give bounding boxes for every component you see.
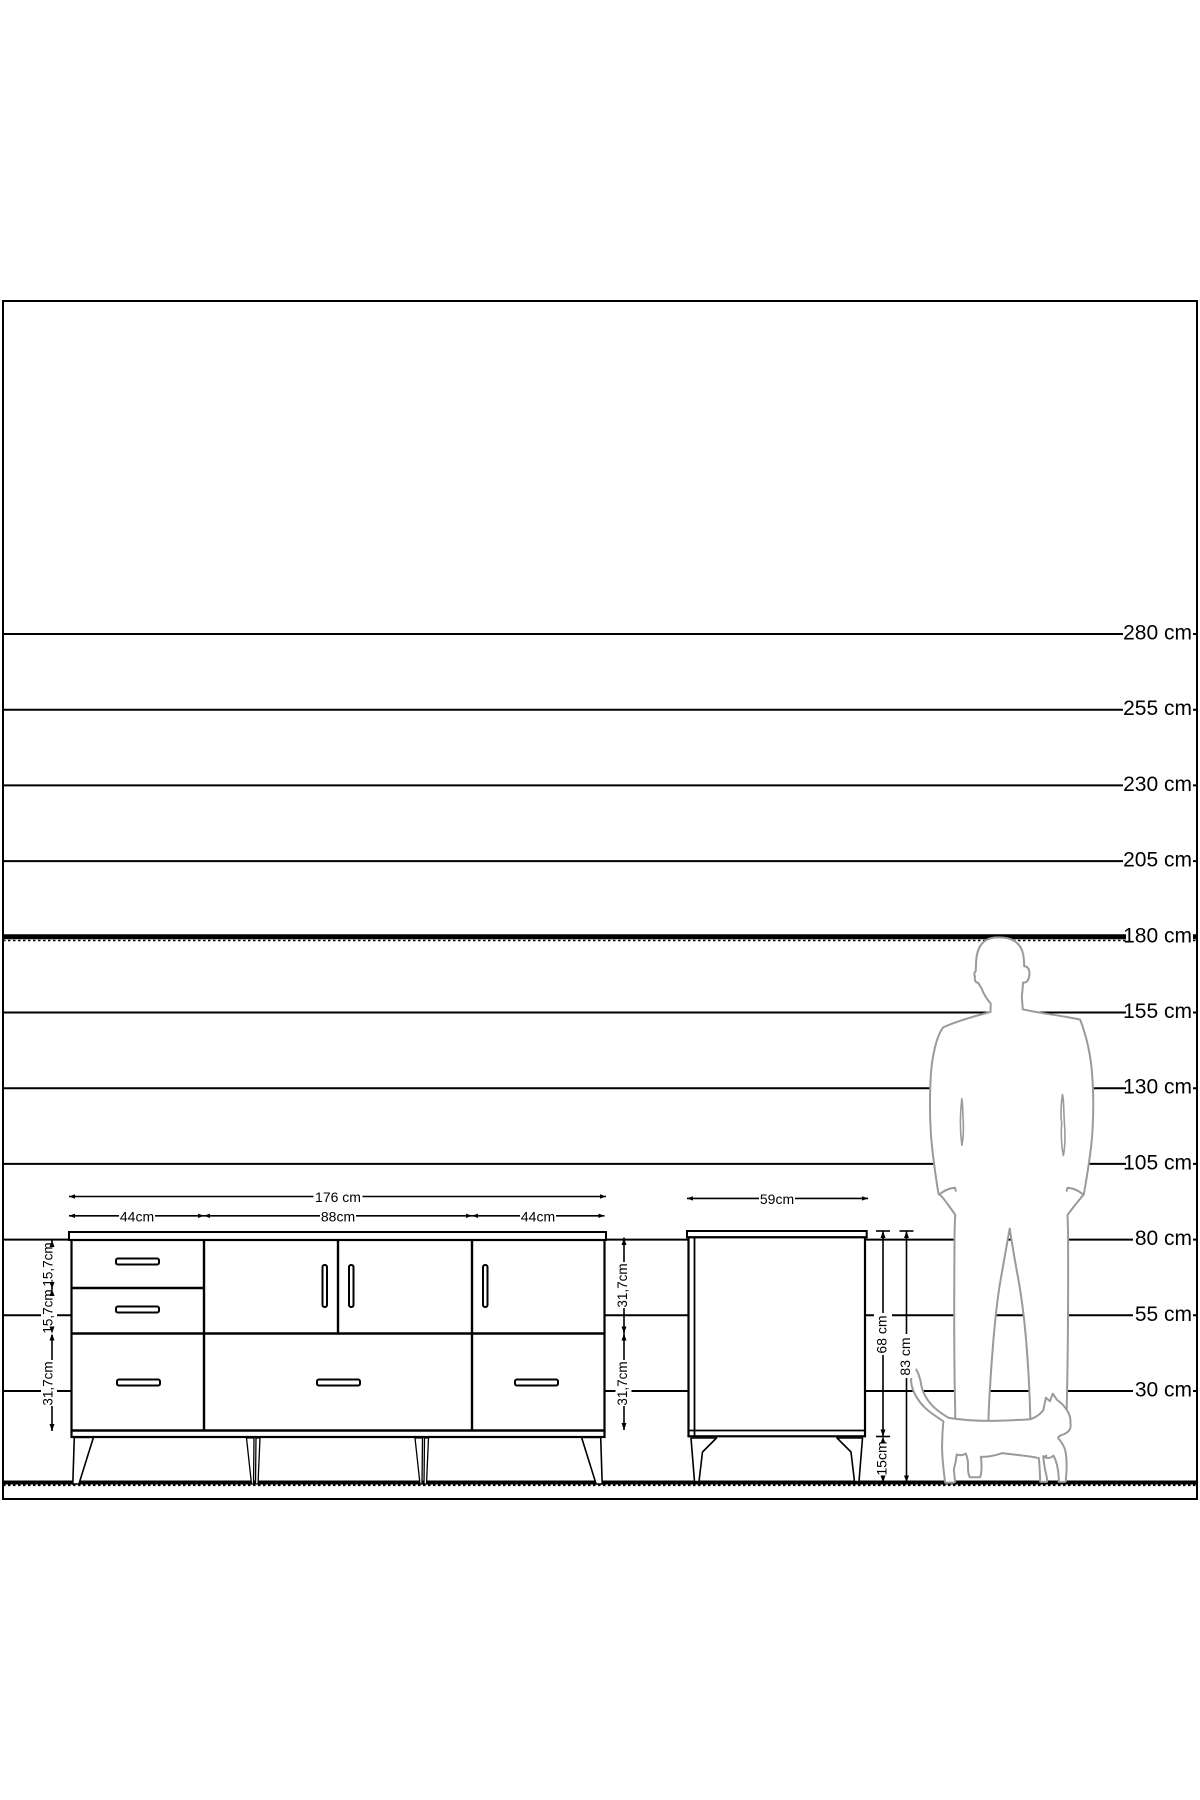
svg-text:80 cm: 80 cm: [1135, 1227, 1192, 1250]
svg-text:255 cm: 255 cm: [1123, 697, 1192, 720]
svg-text:44cm: 44cm: [521, 1209, 555, 1225]
svg-text:31,7cm: 31,7cm: [615, 1361, 630, 1405]
svg-text:30 cm: 30 cm: [1135, 1379, 1192, 1402]
svg-text:155 cm: 155 cm: [1123, 1000, 1192, 1023]
svg-text:15cm: 15cm: [874, 1441, 890, 1475]
svg-text:88cm: 88cm: [321, 1209, 355, 1225]
svg-text:15,7cm: 15,7cm: [41, 1242, 56, 1286]
svg-text:105 cm: 105 cm: [1123, 1151, 1192, 1174]
svg-text:205 cm: 205 cm: [1123, 849, 1192, 872]
svg-text:31,7cm: 31,7cm: [41, 1361, 56, 1405]
svg-text:83 cm: 83 cm: [897, 1337, 913, 1375]
svg-text:130 cm: 130 cm: [1123, 1076, 1192, 1099]
svg-text:280 cm: 280 cm: [1123, 622, 1192, 645]
svg-text:230 cm: 230 cm: [1123, 773, 1192, 796]
svg-text:44cm: 44cm: [120, 1209, 154, 1225]
svg-text:59cm: 59cm: [760, 1191, 794, 1207]
svg-text:176 cm: 176 cm: [315, 1189, 361, 1205]
svg-text:180 cm: 180 cm: [1123, 924, 1192, 947]
svg-text:55 cm: 55 cm: [1135, 1303, 1192, 1326]
svg-text:31,7cm: 31,7cm: [615, 1263, 630, 1307]
svg-text:68 cm: 68 cm: [874, 1315, 890, 1353]
